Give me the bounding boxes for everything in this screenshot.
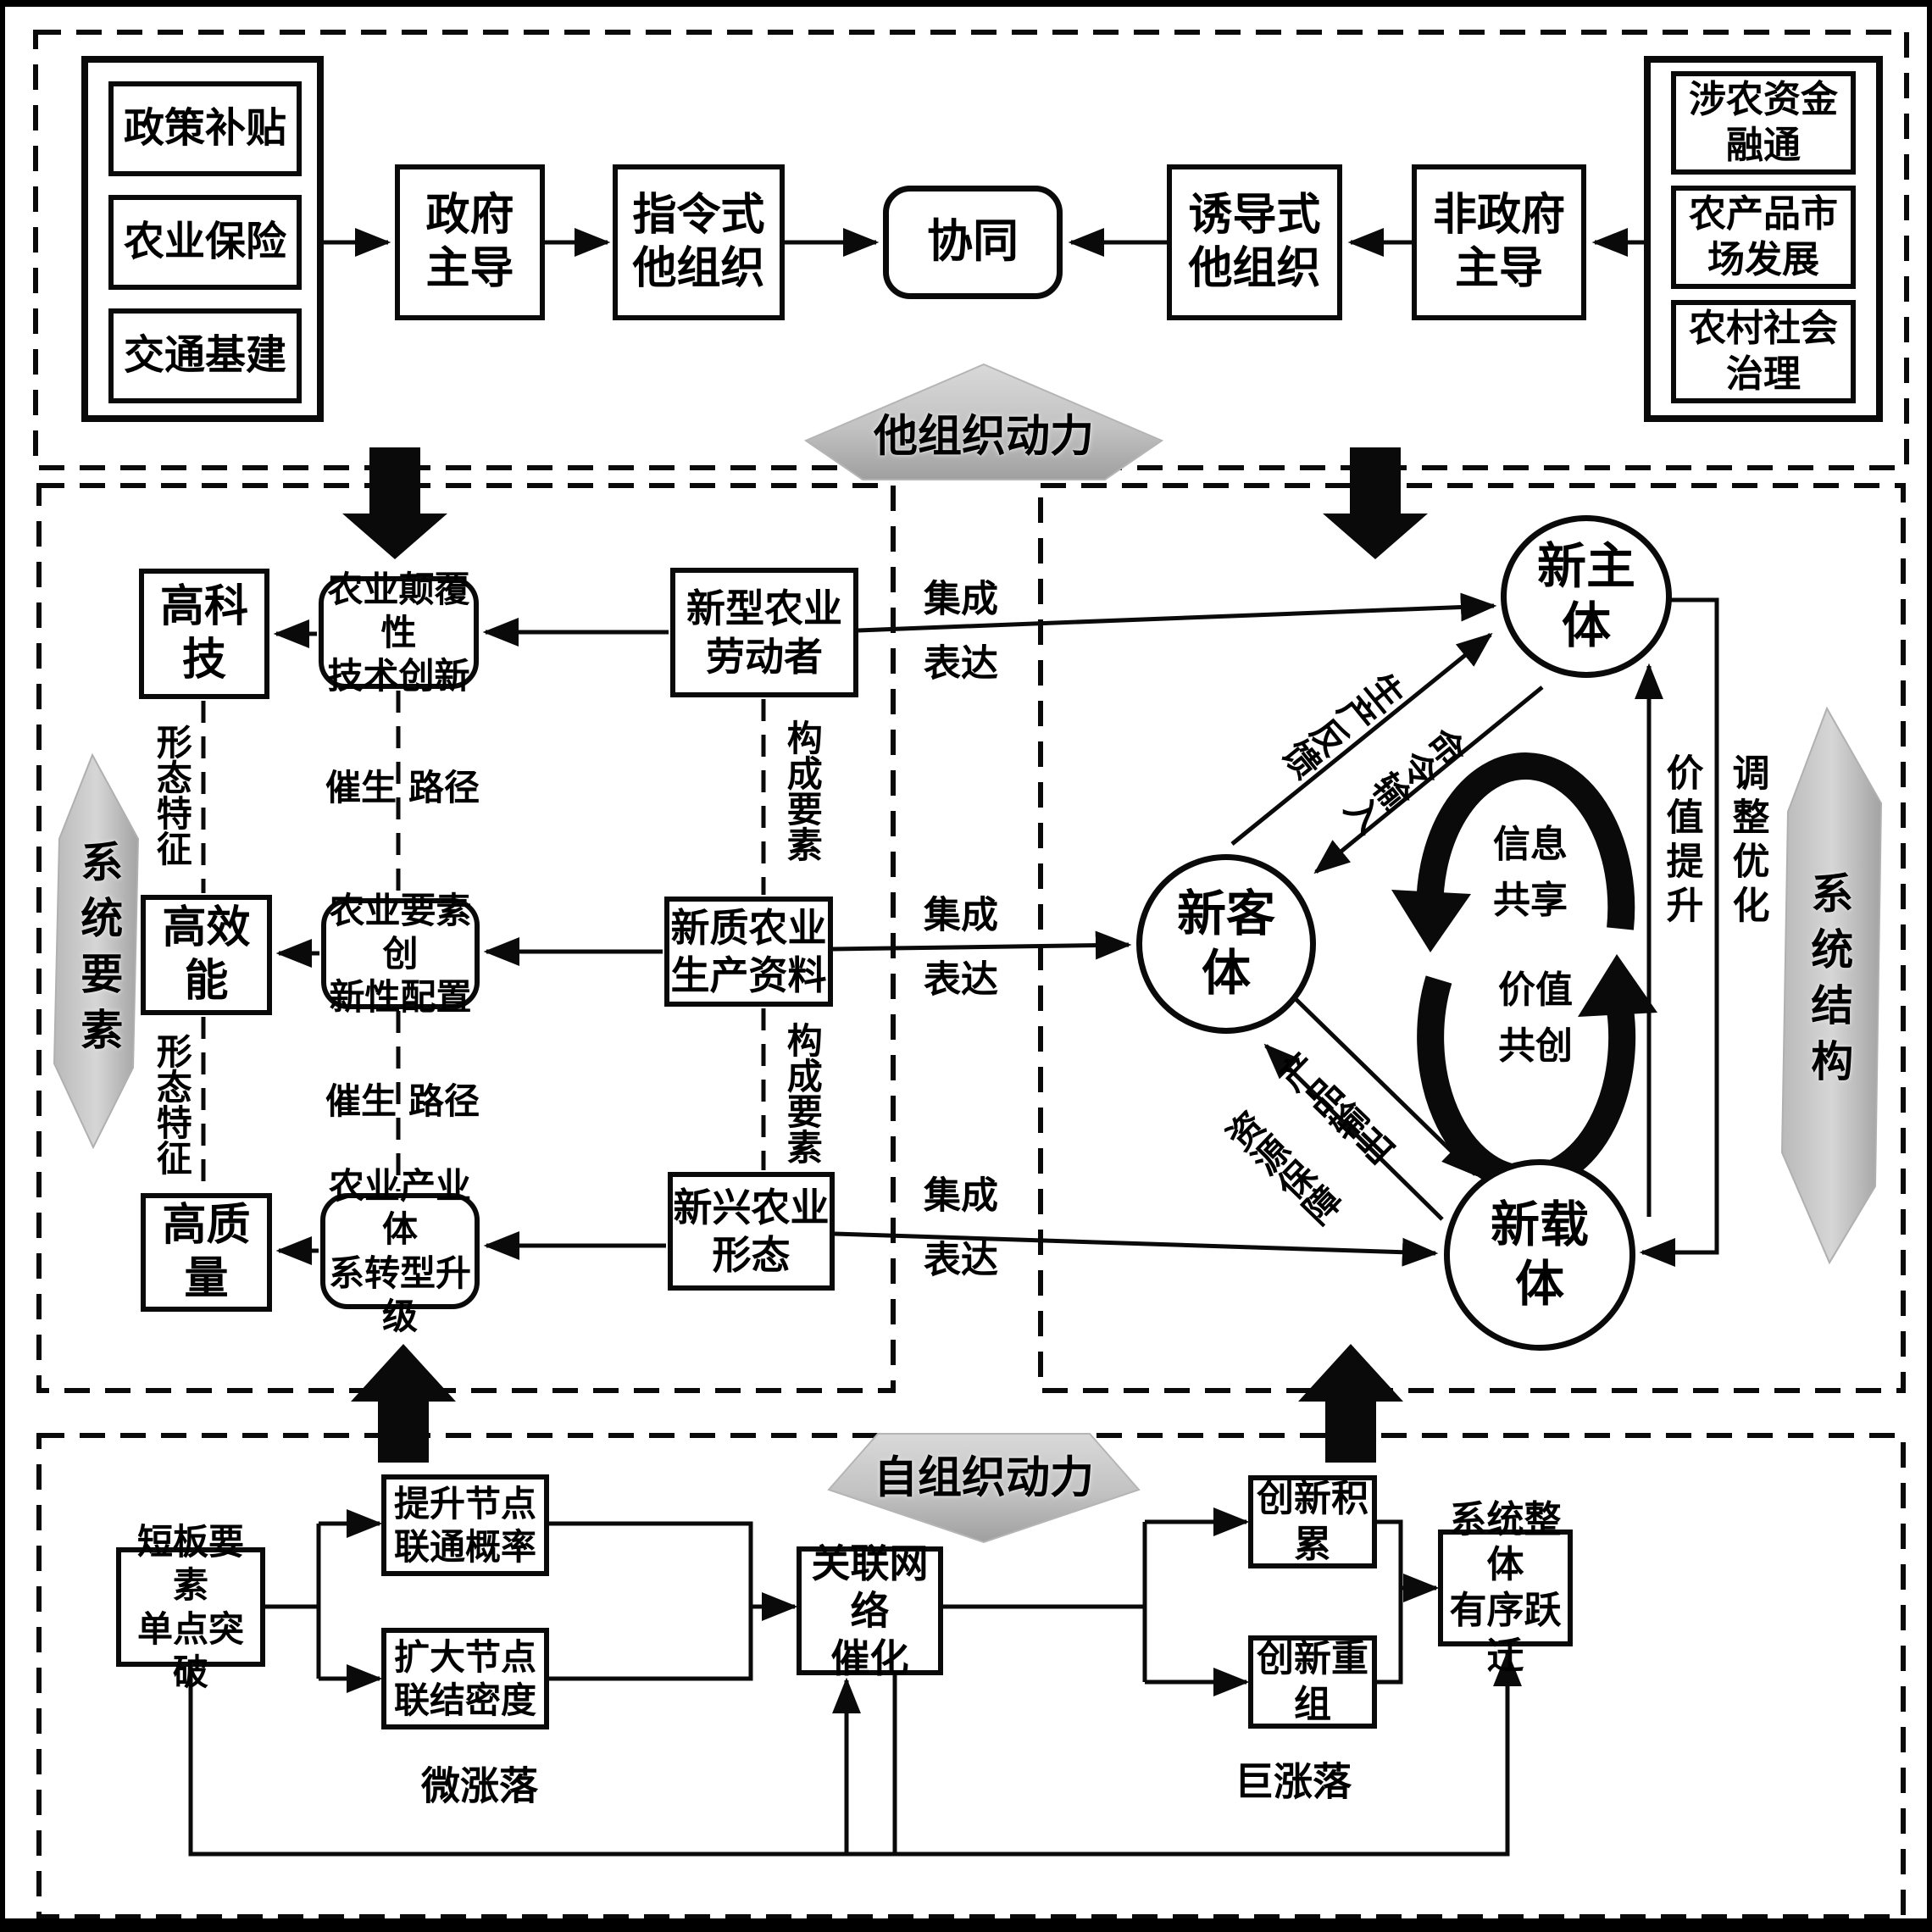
emerging-agri-forms-box: 新兴农业 形态 bbox=[668, 1172, 835, 1291]
disruptive-tech-box: 农业颠覆性 技术创新 bbox=[319, 576, 479, 689]
high-tech-box: 高科技 bbox=[139, 569, 269, 699]
adjust-optimize-label: 调整优化 bbox=[1724, 753, 1771, 930]
block-arrow-up-left bbox=[351, 1344, 456, 1463]
network-catalysis-box: 关联网络 催化 bbox=[797, 1546, 943, 1675]
transport-infra-box: 交通基建 bbox=[108, 308, 302, 403]
synergy-box: 协同 bbox=[883, 186, 1063, 299]
industry-upgrade-box: 农业产业体 系转型升级 bbox=[320, 1193, 480, 1309]
factor-allocation-box: 农业要素创 新性配置 bbox=[321, 898, 480, 1009]
self-force-label: 自组织动力 bbox=[874, 1452, 1094, 1507]
expand-density-box: 扩大节点 联结密度 bbox=[381, 1628, 549, 1729]
block-arrow-down-left bbox=[342, 447, 447, 559]
info-sharing-label: 信息 共享 bbox=[1493, 817, 1568, 929]
hetero-force-label: 他组织动力 bbox=[874, 410, 1094, 465]
catalyze-label-1: 催生 bbox=[325, 766, 397, 811]
agri-market-box: 农产品市 场发展 bbox=[1671, 186, 1856, 289]
breakthrough-box: 短板要素 单点突破 bbox=[116, 1547, 265, 1667]
component-label-2: 构成要素 bbox=[780, 1022, 824, 1164]
agri-finance-box: 涉农资金 融通 bbox=[1671, 71, 1856, 175]
high-efficiency-box: 高效能 bbox=[141, 895, 272, 1015]
path-label-1: 路径 bbox=[408, 766, 480, 811]
high-quality-box: 高质量 bbox=[141, 1193, 272, 1312]
integration-label-2: 集成 表达 bbox=[924, 883, 998, 1011]
block-arrow-up-right bbox=[1298, 1344, 1403, 1463]
new-production-materials-box: 新质农业 生产资料 bbox=[664, 897, 833, 1007]
new-subject-circle: 新主 体 bbox=[1501, 515, 1672, 678]
integration-label-3: 集成 表达 bbox=[924, 1163, 998, 1291]
diagram-canvas: 政策补贴 农业保险 交通基建 政府 主导 指令式 他组织 协同 诱导式 他组织 … bbox=[0, 0, 1932, 1932]
system-leap-box: 系统整体 有序跃迁 bbox=[1438, 1529, 1573, 1646]
innovation-accumulation-box: 创新积累 bbox=[1248, 1475, 1377, 1568]
directive-hetero-org-box: 指令式 他组织 bbox=[613, 164, 785, 320]
component-label-1: 构成要素 bbox=[780, 719, 824, 862]
system-elements-label: 系统要素 bbox=[72, 840, 125, 1063]
path-label-2: 路径 bbox=[408, 1080, 480, 1124]
innovation-recombination-box: 创新重组 bbox=[1248, 1635, 1377, 1729]
catalyze-label-2: 催生 bbox=[325, 1080, 397, 1124]
cycle-up-arrowhead bbox=[1578, 954, 1657, 1017]
policy-subsidy-box: 政策补贴 bbox=[108, 81, 302, 176]
non-government-led-box: 非政府 主导 bbox=[1412, 164, 1586, 320]
micro-fluctuation-label: 微涨落 bbox=[421, 1762, 538, 1811]
block-arrow-down-right bbox=[1323, 447, 1428, 559]
government-led-box: 政府 主导 bbox=[395, 164, 545, 320]
induced-hetero-org-box: 诱导式 他组织 bbox=[1167, 164, 1342, 320]
agri-insurance-box: 农业保险 bbox=[108, 195, 302, 290]
rural-governance-box: 农村社会 治理 bbox=[1671, 300, 1856, 403]
cycle-down-arrowhead bbox=[1391, 890, 1471, 952]
new-object-circle: 新客 体 bbox=[1136, 854, 1316, 1034]
value-promotion-label: 价值提升 bbox=[1658, 753, 1705, 930]
morphology-label-1: 形态特征 bbox=[149, 724, 194, 866]
morphology-label-2: 形态特征 bbox=[149, 1033, 194, 1175]
system-structure-label: 系统结构 bbox=[1802, 871, 1856, 1095]
integration-label-1: 集成 表达 bbox=[924, 567, 998, 695]
new-carrier-circle: 新载 体 bbox=[1444, 1159, 1635, 1351]
macro-fluctuation-label: 巨涨落 bbox=[1235, 1757, 1352, 1807]
new-agri-workers-box: 新型农业 劳动者 bbox=[670, 568, 858, 697]
raise-probability-box: 提升节点 联通概率 bbox=[381, 1474, 549, 1576]
value-cocreation-label: 价值 共创 bbox=[1498, 963, 1573, 1074]
